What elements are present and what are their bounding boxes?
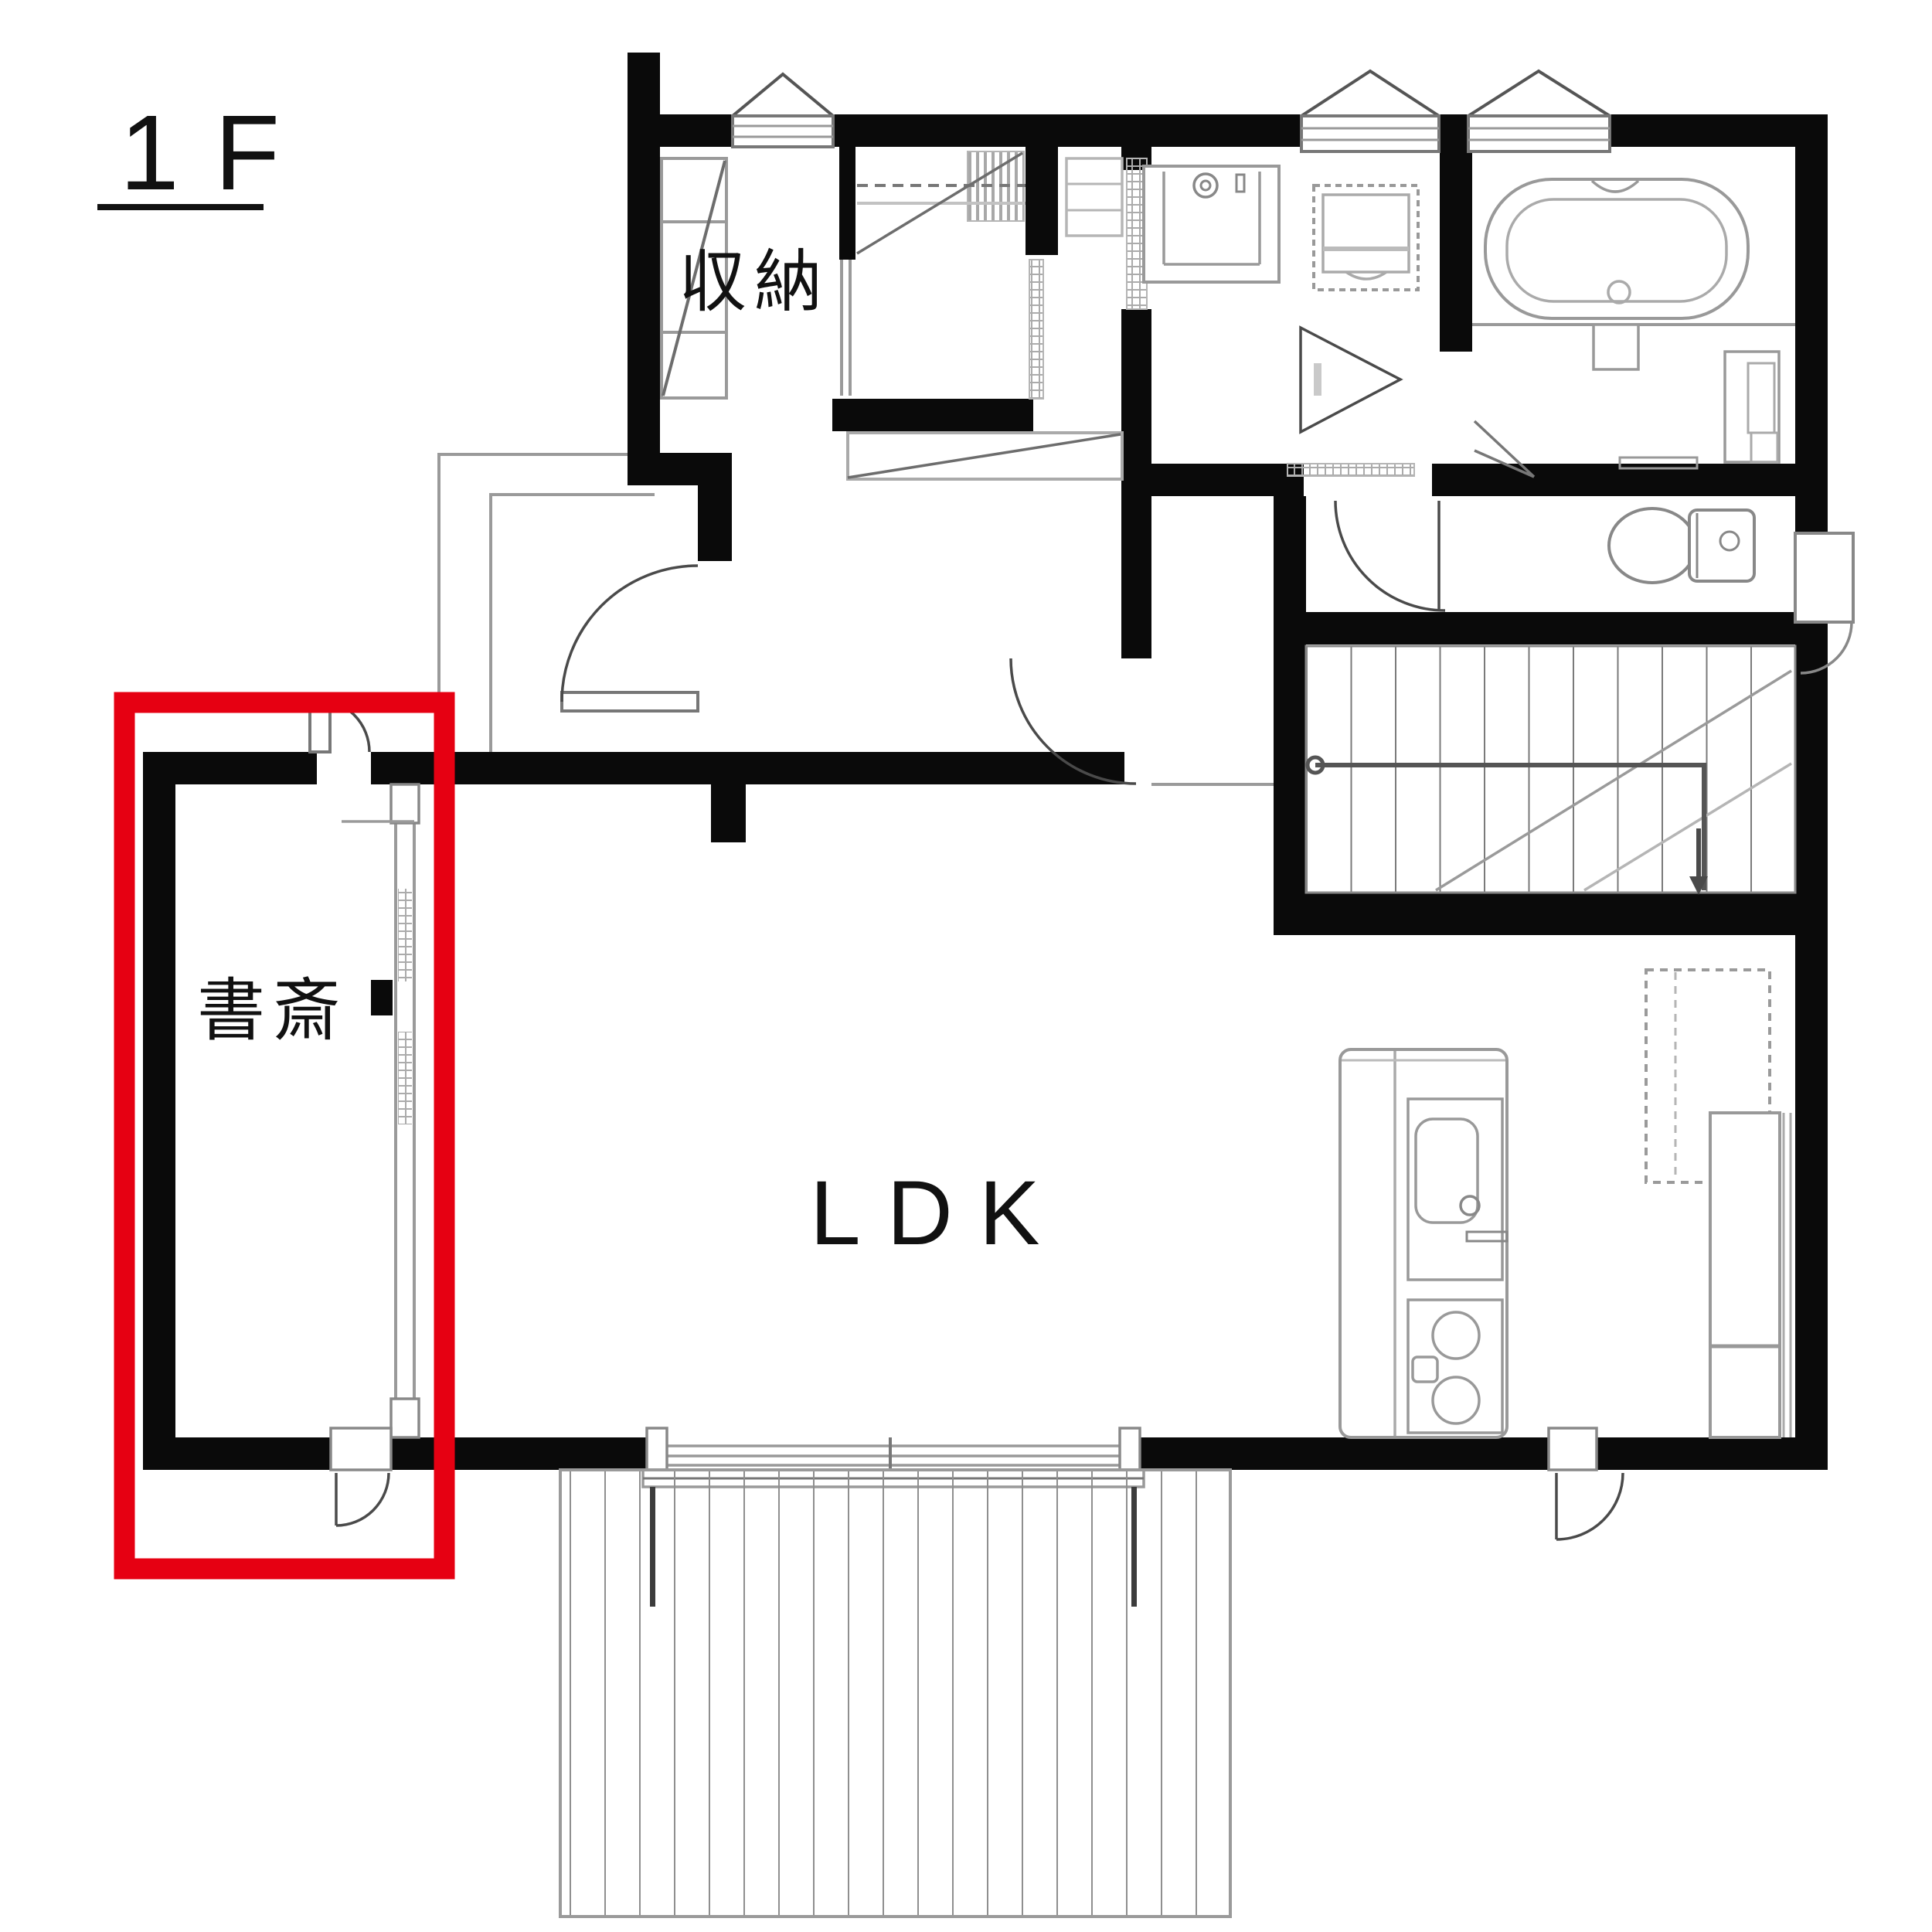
study-south-door-frame bbox=[331, 1428, 391, 1470]
shoe-closet bbox=[848, 433, 1122, 479]
deck bbox=[560, 1428, 1230, 1917]
wall-top-pier bbox=[1435, 114, 1472, 147]
shower-mixer bbox=[1594, 325, 1638, 369]
toilet-bowl bbox=[1609, 509, 1696, 583]
wall-entry-east bbox=[698, 485, 732, 561]
wall-entry-north bbox=[655, 453, 732, 485]
toilet-window-bump bbox=[1795, 533, 1853, 622]
wall-stairs-south bbox=[1274, 893, 1795, 935]
wall-top-storage bbox=[660, 114, 736, 147]
wic-hanger-clothes bbox=[968, 151, 1024, 221]
study-partition-jamb-top bbox=[391, 784, 419, 823]
wall-ldk-nub bbox=[711, 752, 746, 842]
washroom-threshold-slider bbox=[1287, 464, 1414, 476]
washroom-door-handle bbox=[1314, 363, 1321, 396]
kitchen-island bbox=[1340, 1049, 1507, 1437]
study-partition-jamb-bottom bbox=[391, 1399, 419, 1437]
bay-window-washroom bbox=[1301, 116, 1439, 151]
wall-south-study bbox=[143, 1437, 334, 1470]
wall-storage-east bbox=[839, 147, 855, 260]
deck-post-left bbox=[650, 1487, 655, 1607]
wall-top-right bbox=[1606, 114, 1795, 147]
wall-hall-south bbox=[371, 752, 1124, 784]
kitchen-cabinet bbox=[1710, 1113, 1780, 1437]
wall-stairs-west bbox=[1274, 496, 1306, 935]
wall-south-kitchen bbox=[1592, 1437, 1795, 1470]
bay-window-bathroom bbox=[1468, 116, 1610, 151]
kitchen-back-door-frame bbox=[1549, 1428, 1597, 1470]
wic-sliding-door bbox=[1029, 260, 1043, 399]
wall-bath-divider bbox=[1440, 147, 1472, 352]
wood-deck bbox=[560, 1470, 1230, 1917]
ldk-slider-jamb-left bbox=[647, 1428, 667, 1471]
deck-post-right bbox=[1131, 1487, 1137, 1607]
ldk-label: LDK bbox=[810, 1162, 1066, 1264]
study-partition-handle bbox=[371, 980, 393, 1015]
wall-south-ldk-west bbox=[389, 1437, 656, 1470]
wall-study-west bbox=[143, 784, 175, 1437]
wall-outer-right bbox=[1795, 114, 1828, 1470]
wall-washroom-south-east bbox=[1432, 464, 1795, 496]
wall-top-middle bbox=[829, 114, 1305, 147]
study-partition-panel1 bbox=[398, 889, 412, 981]
stair-treads bbox=[1306, 646, 1795, 893]
study-label: 書斎 bbox=[197, 972, 349, 1049]
floor-plan-canvas: 1F 収納 書斎 LDK bbox=[0, 0, 1932, 1932]
wall-study-north-west bbox=[143, 752, 317, 784]
wall-closet-north bbox=[832, 399, 1033, 431]
wall-stairs-north bbox=[1274, 612, 1795, 645]
staircase bbox=[1306, 646, 1795, 895]
storage-label: 収納 bbox=[679, 243, 830, 320]
wall-south-ldk-east bbox=[1130, 1437, 1553, 1470]
study-partition-panel2 bbox=[398, 1032, 412, 1124]
front-door-leaf bbox=[562, 692, 698, 711]
wall-washroom-south-west bbox=[1124, 464, 1304, 496]
floor-label: 1F bbox=[120, 94, 315, 213]
floor-plan-drawing: 1F 収納 書斎 LDK bbox=[0, 0, 1932, 1932]
ldk-slider-jamb-right bbox=[1120, 1428, 1140, 1471]
bay-window-storage bbox=[733, 116, 833, 147]
wall-wic-east bbox=[1026, 141, 1058, 255]
wall-outer-left-upper bbox=[628, 53, 660, 485]
